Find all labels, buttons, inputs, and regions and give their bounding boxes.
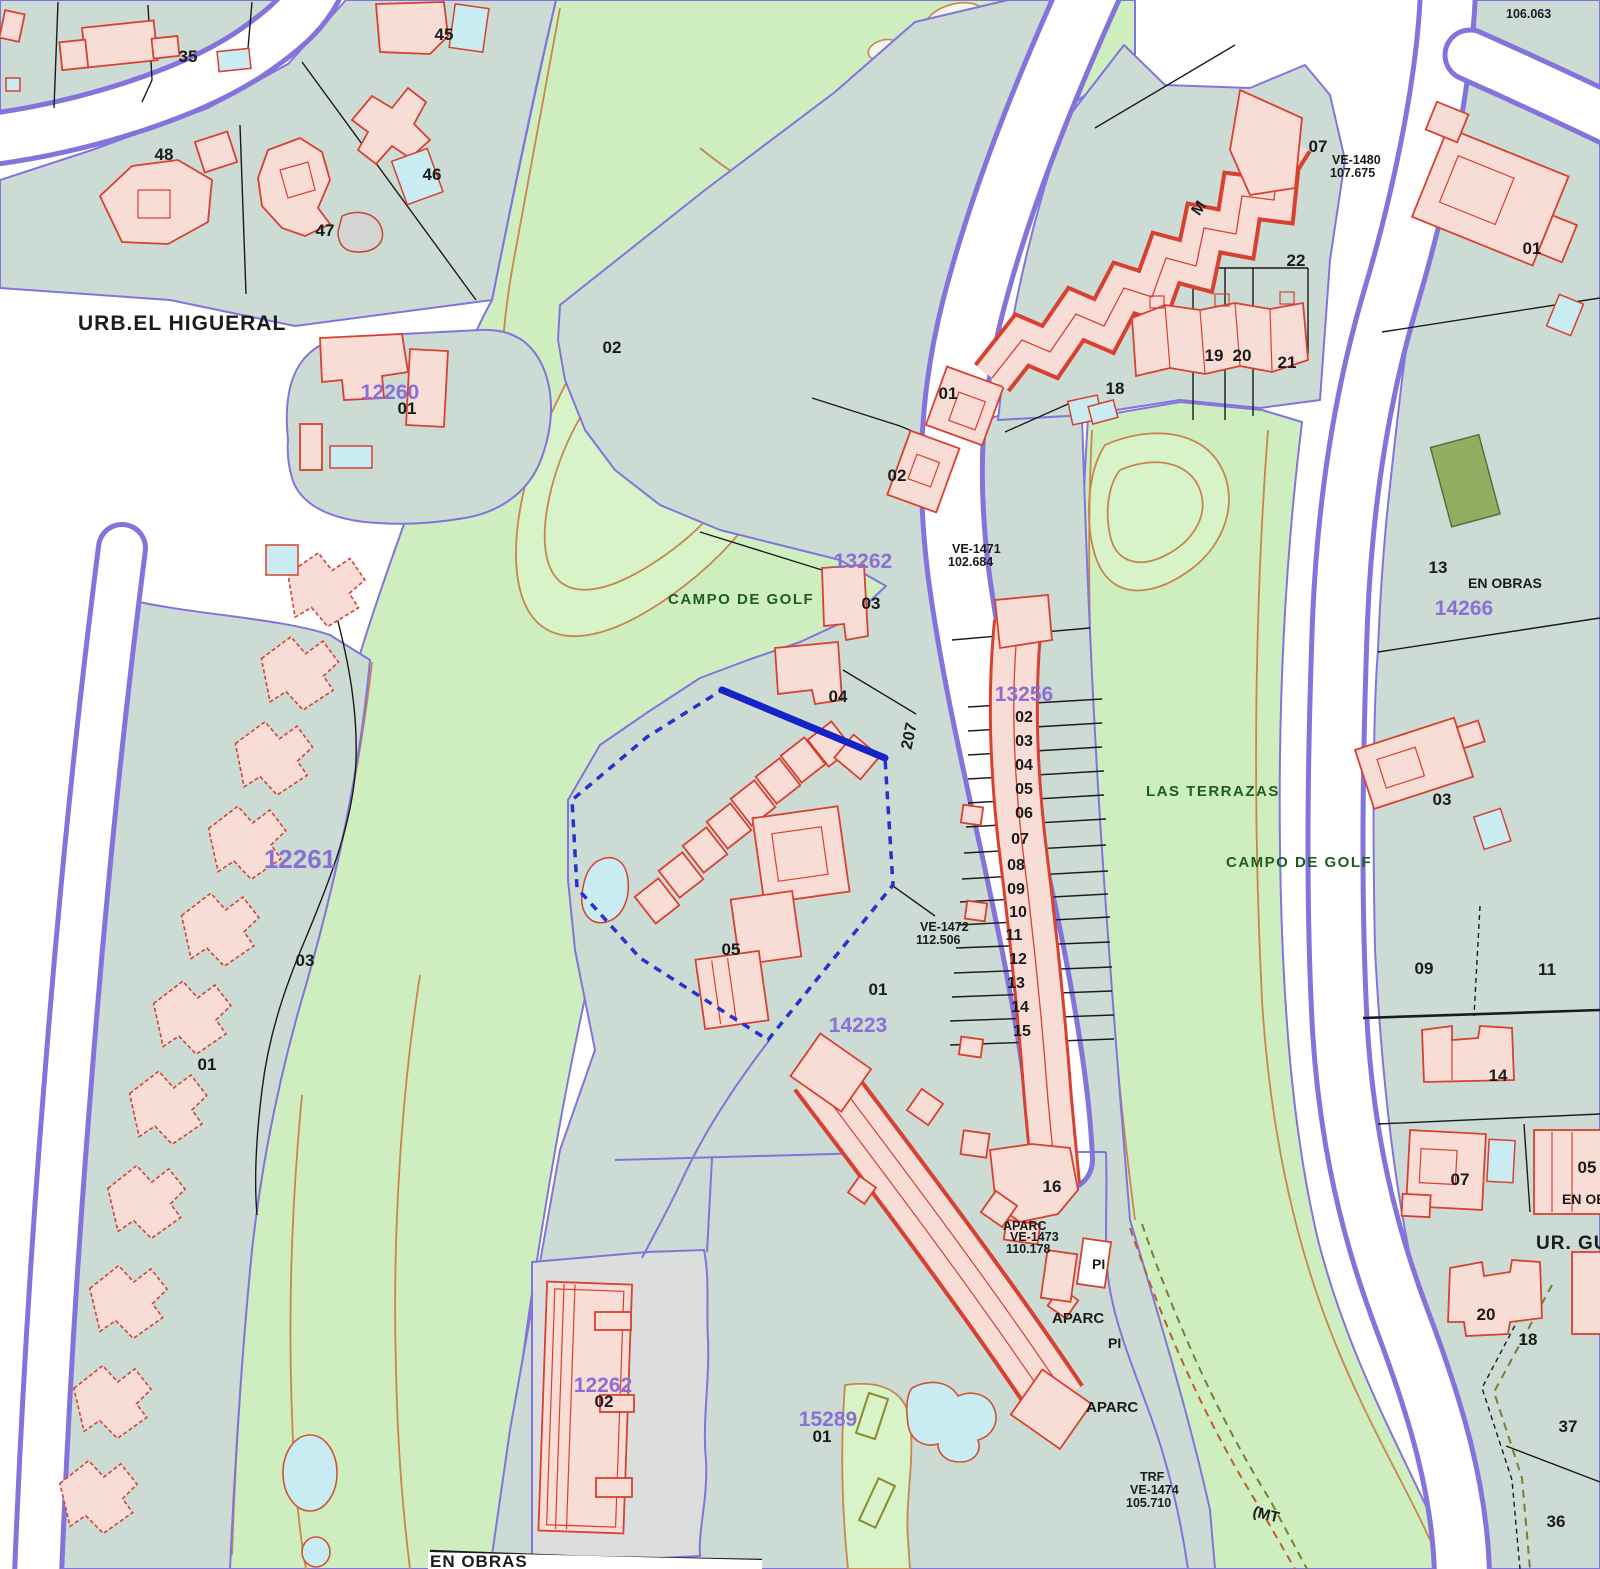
parcel-number-47: 47	[316, 221, 335, 240]
parcel-number-07-right: 07	[1451, 1170, 1470, 1189]
parcel-number-03-right: 03	[1433, 790, 1452, 809]
survey-elevation-105710: 105.710	[1126, 1496, 1171, 1510]
parcel-number-03: 03	[862, 594, 881, 613]
terrace-unit-11: 11	[1006, 927, 1023, 944]
parcel-number-02: 02	[888, 466, 907, 485]
parcel-number-05: 05	[722, 940, 741, 959]
survey-point-ve1474: VE-1474	[1130, 1483, 1179, 1497]
terrace-unit-09: 09	[1007, 881, 1025, 898]
golf-label-las-terrazas: LAS TERRAZAS	[1146, 783, 1280, 800]
pool-45	[449, 4, 489, 52]
pond	[302, 1537, 330, 1567]
terrace-unit-06: 06	[1015, 805, 1033, 822]
golf-label-campo-de-golf-1: CAMPO DE GOLF	[668, 591, 814, 608]
terrace-unit-03: 03	[1015, 733, 1033, 750]
parcel-number-45: 45	[435, 25, 454, 44]
map-canvas[interactable]: URB.EL HIGUERAL 35 45 48 46 47 12260 01 …	[0, 0, 1600, 1569]
label-pi-2: PI	[1108, 1335, 1121, 1351]
parcel-number-01-right: 01	[1523, 239, 1542, 258]
survey-elevation-110178: 110.178	[1006, 1242, 1051, 1256]
parcel-number-46: 46	[423, 165, 442, 184]
terrace-unit-05: 05	[1015, 781, 1033, 798]
parcel-number-09: 09	[1415, 959, 1434, 978]
terrace-unit-08: 08	[1007, 857, 1025, 874]
pool	[330, 446, 372, 468]
pond	[283, 1435, 337, 1511]
parcel-number-07-top: 07	[1309, 137, 1328, 156]
parcel-number-20: 20	[1233, 346, 1252, 365]
parcel-number-01-bottom: 01	[813, 1427, 832, 1446]
parcel-number-01: 01	[198, 1055, 217, 1074]
parcel-id-13262: 13262	[834, 550, 892, 573]
golf-label-campo-de-golf-2: CAMPO DE GOLF	[1226, 854, 1372, 871]
parcel-number-02-bottom: 02	[595, 1392, 614, 1411]
parcel-number-13: 13	[1429, 558, 1448, 577]
status-label-en-obras-right: EN OBRAS	[1468, 575, 1542, 591]
parcel-number-05-right: 05	[1578, 1158, 1597, 1177]
parcel-number-01: 01	[939, 384, 958, 403]
pool	[266, 545, 298, 575]
parcel-number-37: 37	[1559, 1417, 1578, 1436]
survey-point-ve1472: VE-1472	[920, 920, 969, 934]
parcel-number-48: 48	[155, 145, 174, 164]
parcel-number-18: 18	[1106, 379, 1125, 398]
parcel-id-13256: 13256	[995, 683, 1053, 706]
parcel-number-14: 14	[1489, 1066, 1508, 1085]
road-label-ur-gu: UR. GU	[1536, 1233, 1600, 1254]
building-edge	[1572, 1252, 1600, 1334]
parcel-number-22: 22	[1287, 251, 1306, 270]
building-07-right	[1402, 1130, 1486, 1220]
parcel-number-01: 01	[398, 399, 417, 418]
parcel-number-11: 11	[1538, 960, 1556, 979]
pool	[1487, 1139, 1515, 1182]
label-aparc-2: APARC	[1052, 1310, 1104, 1327]
building-gray	[338, 212, 382, 252]
parcel-id-12261: 12261	[264, 844, 336, 874]
survey-elevation-107675: 107.675	[1330, 166, 1375, 180]
status-label-en-obras-bottom: EN OBRAS	[430, 1552, 528, 1569]
terrace-unit-13: 13	[1007, 975, 1025, 992]
terrace-unit-07: 07	[1011, 831, 1029, 848]
pool	[6, 78, 20, 91]
terrace-unit-15: 15	[1013, 1023, 1031, 1040]
parcel-number-36: 36	[1547, 1512, 1566, 1531]
parcel-number-03: 03	[296, 951, 315, 970]
terrace-unit-04: 04	[1015, 757, 1033, 774]
status-label-en-obras-edge: EN OBRAS	[1562, 1191, 1600, 1207]
parcel-number-35: 35	[179, 47, 198, 66]
parcel-number-19: 19	[1205, 346, 1224, 365]
terrace-unit-16: 16	[1043, 1177, 1062, 1196]
survey-point-ve1471: VE-1471	[952, 542, 1001, 556]
label-trf: TRF	[1140, 1470, 1165, 1484]
parcel-number-02: 02	[603, 338, 622, 357]
survey-elevation-112506: 112.506	[916, 933, 961, 947]
parcel-id-14223: 14223	[829, 1014, 887, 1037]
map-viewport: URB.EL HIGUERAL 35 45 48 46 47 12260 01 …	[0, 0, 1600, 1569]
parcel-number-18-right: 18	[1519, 1330, 1538, 1349]
building	[82, 20, 158, 67]
terrace-unit-12: 12	[1009, 951, 1027, 968]
parcel-number-04: 04	[829, 687, 848, 706]
parcel-number-20-right: 20	[1477, 1305, 1496, 1324]
parcel-id-14266: 14266	[1435, 597, 1493, 620]
terrace-unit-14: 14	[1011, 999, 1029, 1016]
parcel-number-01: 01	[869, 980, 888, 999]
building-aparc	[1041, 1250, 1077, 1302]
pool	[217, 48, 251, 71]
survey-elevation-102684: 102.684	[948, 555, 993, 569]
label-aparc-3: APARC	[1086, 1399, 1138, 1416]
survey-elevation-106063: 106.063	[1506, 7, 1551, 21]
survey-point-ve1480: VE-1480	[1332, 153, 1381, 167]
terrace-unit-02: 02	[1015, 709, 1033, 726]
area-label-urb-el-higueral: URB.EL HIGUERAL	[78, 312, 286, 335]
terrace-unit-10: 10	[1009, 904, 1027, 921]
parcel-number-21: 21	[1278, 353, 1297, 372]
label-pi-1: PI	[1092, 1256, 1105, 1272]
